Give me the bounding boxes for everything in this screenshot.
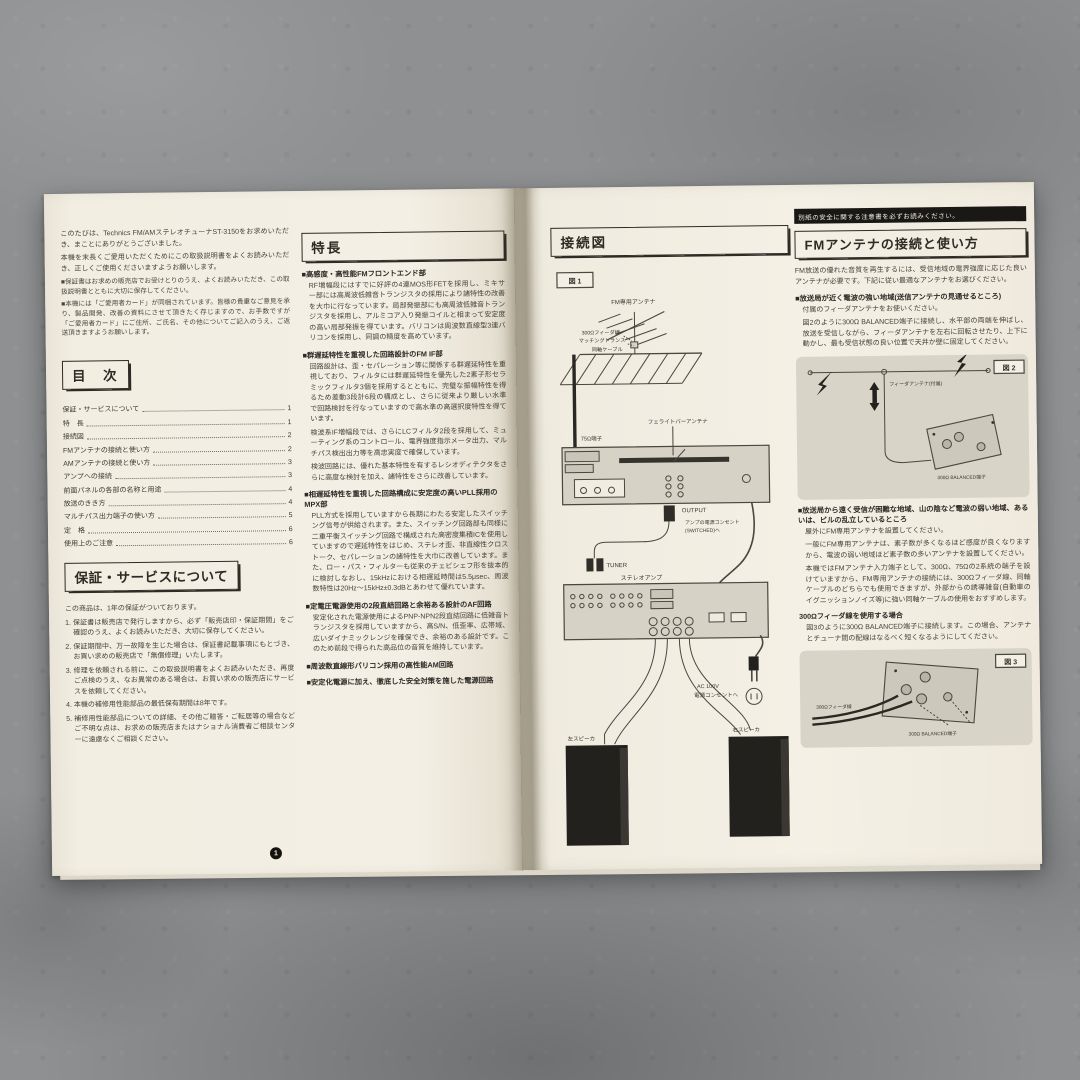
fig2-label: 図 2 (1003, 363, 1016, 372)
toc-dots (87, 436, 285, 439)
toc-item-page: 4 (288, 499, 292, 506)
coax-label: 同軸ケーブル (592, 345, 623, 353)
amplifier-rear-panel (564, 582, 769, 639)
toc-dots (87, 423, 285, 426)
toc-item: 接続図2 (63, 429, 292, 442)
fig3-label: 図 3 (1004, 657, 1017, 666)
toc-item-page: 6 (289, 539, 293, 546)
feature-body: 検波系IF増幅段では、さらにLCフィルタ2段を採用して、ミューティング系のコント… (303, 426, 507, 460)
toc-item-page: 2 (288, 446, 292, 453)
feeder-antenna-label: フィーダアンテナ(付属) (889, 380, 942, 388)
output-cable (586, 505, 676, 571)
toc-dots (165, 490, 286, 492)
feature-heading: ■群遅延特性を重視した回路設計のFM IF部 (303, 348, 506, 360)
left-column: このたびは、Technics FM/AMステレオチューナST-3150をお求めい… (60, 227, 295, 749)
toc-item-label: 使用上のご注意 (64, 539, 113, 550)
toc-item-page: 2 (288, 432, 292, 439)
fm-guide-s3-heading: 300Ωフィーダ線を使用する場合 (799, 609, 1031, 622)
fig1-label: 図 1 (568, 277, 581, 286)
fm-guide-s1-p1: 付属のフィーダアンテナをお使いください。 (795, 303, 1027, 316)
toc-item-label: FMアンテナの接続と使い方 (63, 444, 150, 455)
intro-paragraph: このたびは、Technics FM/AMステレオチューナST-3150をお求めい… (60, 227, 289, 251)
feeder-wire-label: 300Ωフィーダ線 (816, 703, 852, 710)
toc-item: アンプへの接続3 (63, 469, 292, 482)
toc-item-label: 保証・サービスについて (62, 404, 139, 415)
toc-dots (142, 409, 284, 412)
toc-item-page: 1 (287, 405, 291, 412)
manual-page-2: 接続図 (514, 182, 1042, 870)
warranty-section: この商品は、1年の保証がついております。 1. 保証書は販売店で発行しますから、… (65, 602, 295, 746)
table-of-contents: 保証・サービスについて1 特 長1 接続図2 FMアンテナの接続と使い方2 AM… (62, 402, 292, 549)
fm-guide-s2-p2: 一般にFM専用アンテナは、素子数が多くなるほど感度が良くなりますから、電波の弱い… (798, 538, 1030, 562)
warranty-heading: 保証・サービスについて (64, 561, 238, 592)
fm-guide-s2-heading: ■放送局から遠く受信が困難な地域、山の陰など電波の弱い地域、あるいは、ビルの乱立… (798, 503, 1030, 526)
tuner-rear-panel (562, 445, 770, 505)
feeder-connection-figure: 図 3 300Ωフィーダ線 300Ω BALANCED端子 (800, 648, 1033, 743)
toc-item: 前面パネルの各部の名称と用途4 (63, 483, 292, 496)
features-heading: 特長 (301, 230, 505, 261)
toc-item: FMアンテナの接続と使い方2 (63, 443, 292, 456)
toc-item: マルチパス出力端子の使い方5 (64, 510, 293, 523)
safety-notice-bar: 別紙の安全に関する注意書を必ずお読みください。 (794, 206, 1026, 224)
toc-item-page: 4 (288, 486, 292, 493)
toc-item-label: 放送のきき方 (64, 498, 106, 509)
toc-item-label: アンプへの接続 (63, 472, 112, 483)
manual-booklet: このたびは、Technics FM/AMステレオチューナST-3150をお求めい… (44, 182, 1042, 876)
output-label: OUTPUT (682, 508, 707, 514)
fm-guide-s1-heading: ■放送局が近く電波の強い地域(送信アンテナの見通せるところ) (795, 291, 1027, 304)
stereo-amp-label: ステレオアンプ (621, 575, 663, 583)
toc-item: 特 長1 (63, 416, 292, 429)
connection-heading: 接続図 (550, 225, 788, 257)
warranty-item: 5. 補修用性能部品についての詳細、その他ご贈答・ご転居等の場合などご不明な点は… (66, 712, 295, 746)
toc-dots (115, 476, 285, 479)
features-column: 特長 ■高感度・高性能FMフロントエンド部 RF増幅段にはすでに好評の4連MOS… (301, 230, 511, 746)
fm-guide-heading: FMアンテナの接続と使い方 (794, 228, 1026, 259)
feature-body: 回路設計は、歪・セパレーション等に関係する群遅延特性を重視しており、フィルタには… (303, 360, 507, 425)
toc-dots (88, 530, 286, 533)
toc-item: AMアンテナの接続と使い方3 (63, 456, 292, 469)
matching-transformer-label: マッチングトランス (579, 336, 626, 345)
warranty-item: 4. 本機の補修用性能部品の最低保有期間は8年です。 (66, 698, 295, 711)
fm-guide-column: 別紙の安全に関する注意書を必ずお読みください。 FMアンテナの接続と使い方 FM… (794, 200, 1034, 857)
toc-item-label: 定 格 (64, 525, 85, 535)
tuner-plug-label: TUNER (606, 563, 627, 569)
toc-item-label: AMアンテナの接続と使い方 (63, 458, 150, 469)
feature-heading: ■定電圧電源使用の2段直結回路と余裕ある設計のAF回路 (306, 599, 509, 611)
warranty-item: 3. 修理を依頼される前に、この取扱説明書をよくお読みいただき、再度ご点検のうえ… (66, 664, 295, 698)
toc-dots (116, 543, 286, 546)
feature-body: PLL方式を採用していますから長期にわたる安定したスイッチング信号が供給されます… (304, 509, 508, 595)
toc-item-page: 5 (289, 513, 293, 520)
toc-item: 放送のきき方4 (64, 496, 293, 509)
toc-dots (153, 450, 285, 453)
feature-heading: ■周波数直線形バリコン採用の高性能AM回路 (306, 659, 509, 671)
fm-guide-s3-p1: 図3のように300Ω BALANCED端子に接続します。この場合、アンテナとチュ… (799, 621, 1031, 645)
fm-guide-s2-p3: 本機ではFMアンテナ入力端子として、300Ω、75Ωの2系統の端子を設けています… (798, 562, 1030, 607)
manual-page-1: このたびは、Technics FM/AMステレオチューナST-3150をお求めい… (44, 188, 522, 876)
feature-heading: ■安定化電源に加え、徹底した安全対策を施した電源回路 (306, 675, 509, 687)
feeder-label: 300Ωフィーダ線 (582, 328, 620, 336)
feature-body: 検波回路には、優れた基本特性を有するレシオディテクタをさらに高度な検討を加え、諸… (304, 461, 508, 484)
intro-note: ■保証書はお求めの販売店でお受けとりのうえ、よくお読みいただき、この取扱説明書と… (61, 275, 290, 298)
switched-outlet-label2: (SWITCHED)へ (685, 528, 720, 534)
toc-item-label: 前面パネルの各部の名称と用途 (63, 484, 161, 495)
fm-guide-lead: FM放送の優れた音質を再生するには、受信地域の電界強度に応じた良いアンテナが必要… (795, 264, 1027, 288)
toc-dots (108, 503, 285, 506)
right-speaker (729, 736, 790, 837)
wall-outlet-label: 電源コンセントへ (694, 691, 739, 700)
balanced-terminal-label: 300Ω BALANCED端子 (937, 473, 986, 481)
toc-item-page: 1 (287, 419, 291, 426)
fig2-box: 図 2 フィーダアンテナ(付属) 300Ω BALANCED端子 (796, 354, 1030, 500)
switched-outlet-label: アンプの電源コンセント (685, 519, 740, 527)
roof (560, 353, 702, 385)
feature-body: 安定化された電源使用によるPNP-NPN2段直結回路に低雑音トランジスタを採用し… (306, 611, 510, 655)
left-speaker (566, 745, 629, 846)
intro-note: ■本機には「ご愛用者カード」が同梱されています。皆様の貴重なご意見を承り、製品開… (61, 297, 290, 339)
terminal75-label: 75Ω端子 (581, 434, 603, 442)
fm-guide-s2-p1: 屋外にFM専用アンテナを設置してください。 (798, 525, 1030, 538)
warranty-item: 2. 保証期間中、万一故障を生じた場合は、保証書記載事項にもとづき、お買い求めの… (65, 640, 294, 664)
feature-heading: ■相遅延特性を重視した回路構成に安定度の高いPLL採用のMPX部 (304, 488, 508, 510)
right-speaker-label: 右スピーカ (732, 725, 760, 733)
photo-background: このたびは、Technics FM/AMステレオチューナST-3150をお求めい… (0, 0, 1080, 1080)
rear-panel (882, 662, 978, 723)
fm-antenna-label: FM専用アンテナ (611, 298, 656, 307)
fm-guide-s1-p2: 図2のように300Ω BALANCED端子に接続し、水平部の両端を伸ばし、放送を… (795, 316, 1027, 350)
feeder-antenna-figure: 図 2 フィーダアンテナ(付属) 300Ω BALANCED端子 (796, 354, 1030, 495)
feature-body: RF増幅段にはすでに好評の4連MOS形FETを採用し、ミキサー部には高周波低雑音… (302, 279, 506, 344)
warranty-lead: この商品は、1年の保証がついております。 (65, 602, 294, 615)
toc-item: 保証・サービスについて1 (62, 402, 291, 415)
toc-item-page: 3 (288, 472, 292, 479)
toc-dots (153, 463, 285, 466)
toc-item-label: マルチパス出力端子の使い方 (64, 511, 155, 522)
connection-column: 接続図 (550, 225, 796, 860)
balanced-terminal-label: 300Ω BALANCED端子 (908, 730, 957, 738)
ferrite-antenna-label: フェライトバーアンテナ (648, 418, 709, 426)
feature-heading: ■高感度・高性能FMフロントエンド部 (302, 267, 505, 279)
toc-item: 使用上のご注意6 (64, 536, 293, 549)
rear-panel (927, 414, 1002, 469)
amp-power-cord (745, 635, 763, 704)
toc-heading: 目 次 (62, 360, 129, 390)
toc-item-page: 3 (288, 459, 292, 466)
toc-item-label: 特 長 (63, 418, 84, 428)
toc-item-page: 6 (289, 526, 293, 533)
intro-paragraph: 本機を末長くご愛用いただくためにこの取扱説明書をよくお読みいただき、正しくご使用… (61, 251, 290, 275)
warranty-item: 1. 保証書は販売店で発行しますから、必ず「販売店印・保証期間」をご確認のうえ、… (65, 616, 294, 640)
fig3-box: 図 3 300Ωフィーダ線 300Ω BALANCED端子 (800, 648, 1033, 748)
speaker-cables (603, 637, 750, 744)
toc-dots (158, 517, 286, 520)
left-speaker-label: 左スピーカ (568, 734, 596, 742)
toc-item: 定 格6 (64, 523, 293, 536)
ac100v-label: AC 100V (697, 684, 719, 690)
page-number-badge: 1 (270, 847, 282, 859)
toc-item-label: 接続図 (63, 432, 84, 442)
connection-diagram-figure: 図 1 FM専用アンテナ 300Ωフィーダ線 マッチングトランス 同軸ケーブル … (551, 260, 796, 855)
